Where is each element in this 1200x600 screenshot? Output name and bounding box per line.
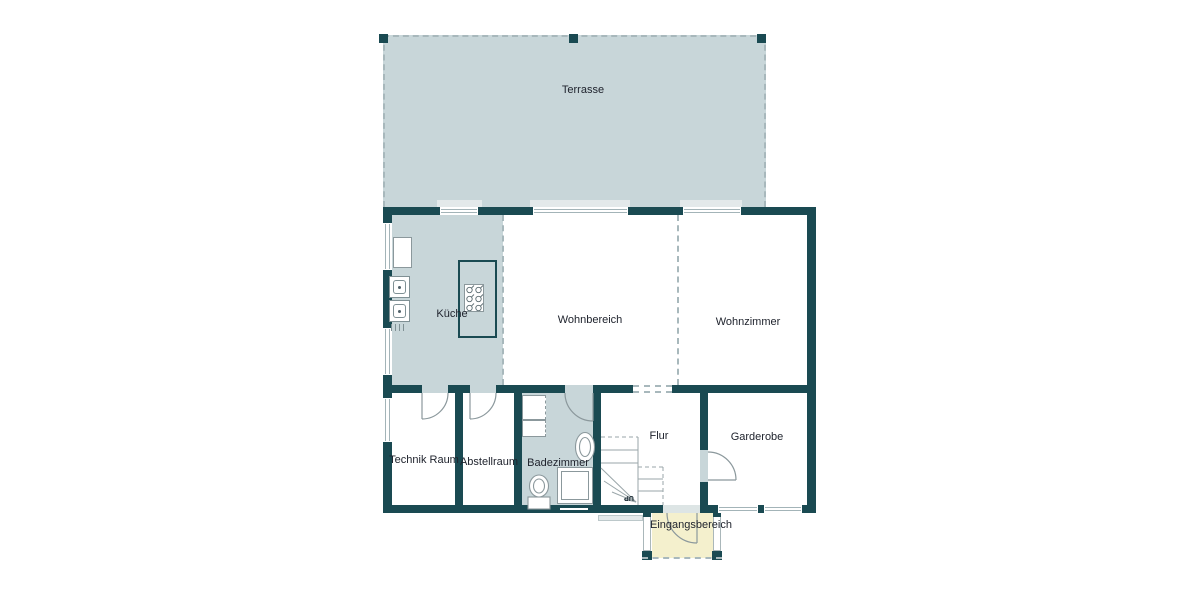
room-label-technik-raum: Technik Raum — [389, 454, 459, 467]
door-opening-abstell — [470, 385, 496, 393]
wall-flur-garderobe — [700, 393, 708, 505]
room-label-wohnbereich: Wohnbereich — [558, 314, 623, 327]
bath-cabinet — [522, 420, 546, 437]
window — [533, 207, 628, 215]
room-label-badezimmer: Badezimmer — [527, 457, 589, 470]
stove-icon — [389, 276, 410, 298]
door-swing-technik-icon — [422, 393, 448, 419]
door-opening-technik — [422, 385, 448, 393]
room-label-eingangsbereich: Eingangsbereich — [650, 519, 732, 532]
window — [383, 223, 392, 270]
wall-bad-flur — [593, 385, 601, 505]
window-sill — [530, 200, 630, 207]
porch-edge — [642, 557, 722, 559]
door-opening-entry — [663, 505, 700, 513]
bath-cabinet — [522, 395, 546, 420]
terrasse-post — [379, 34, 388, 43]
stairs-direction-label: UP — [624, 493, 634, 501]
wall-technik-abstell — [455, 393, 463, 505]
terrasse-post — [757, 34, 766, 43]
window — [383, 328, 392, 375]
door-swing-abstell-icon — [470, 393, 496, 419]
terrasse-post — [569, 34, 578, 43]
window-sill — [680, 200, 742, 207]
room-label-kueche: Küche — [436, 308, 467, 321]
window-sill — [437, 200, 482, 207]
divider-kueche-wohnbereich — [502, 215, 504, 385]
shower-icon — [557, 467, 593, 504]
window — [718, 505, 758, 513]
room-terrasse — [383, 35, 766, 207]
sink-unit-icon — [389, 300, 410, 322]
porch-step — [598, 515, 643, 521]
passage-wohnbereich-flur — [633, 385, 672, 393]
door-opening-garderobe — [700, 450, 708, 482]
room-label-wohnzimmer: Wohnzimmer — [716, 316, 781, 329]
room-label-terrasse: Terrasse — [562, 84, 604, 97]
divider-wohnbereich-wohnzimmer — [677, 215, 679, 385]
window — [683, 207, 741, 215]
window — [764, 505, 802, 513]
floor-plan: Terrasse Küche Wohnbereich Wohnzimmer Te… — [0, 0, 1200, 600]
room-label-flur: Flur — [650, 430, 669, 443]
door-opening-bad — [565, 385, 593, 393]
porch-post — [713, 513, 721, 517]
porch-post — [643, 513, 651, 517]
door-swing-garderobe-icon — [708, 452, 736, 480]
wall-right — [807, 207, 816, 513]
window — [440, 207, 478, 215]
room-label-garderobe: Garderobe — [731, 431, 784, 444]
room-label-abstellraum: Abstellraum — [460, 456, 518, 469]
kitchen-counter — [393, 237, 412, 268]
window — [383, 398, 392, 442]
wall-abstell-bad — [514, 385, 522, 505]
